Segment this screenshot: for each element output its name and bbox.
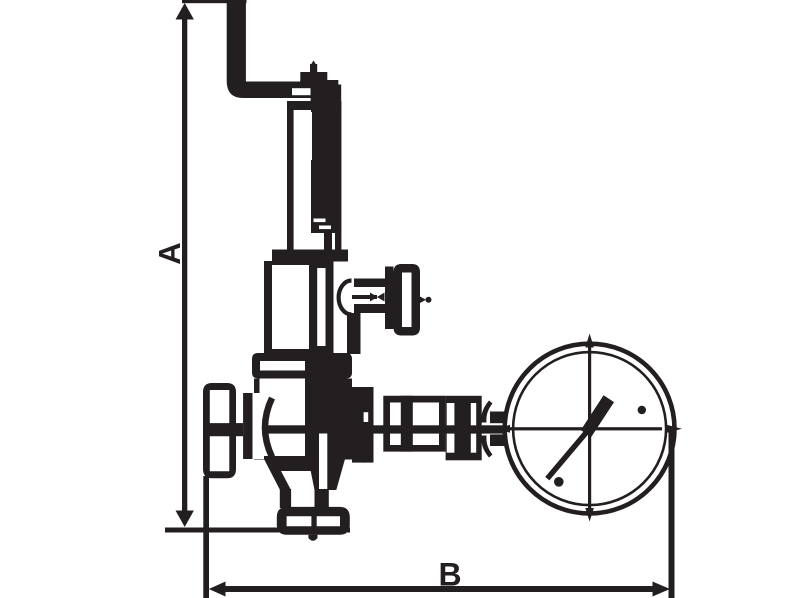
svg-text:B: B — [438, 557, 461, 593]
svg-text:A: A — [152, 242, 187, 264]
